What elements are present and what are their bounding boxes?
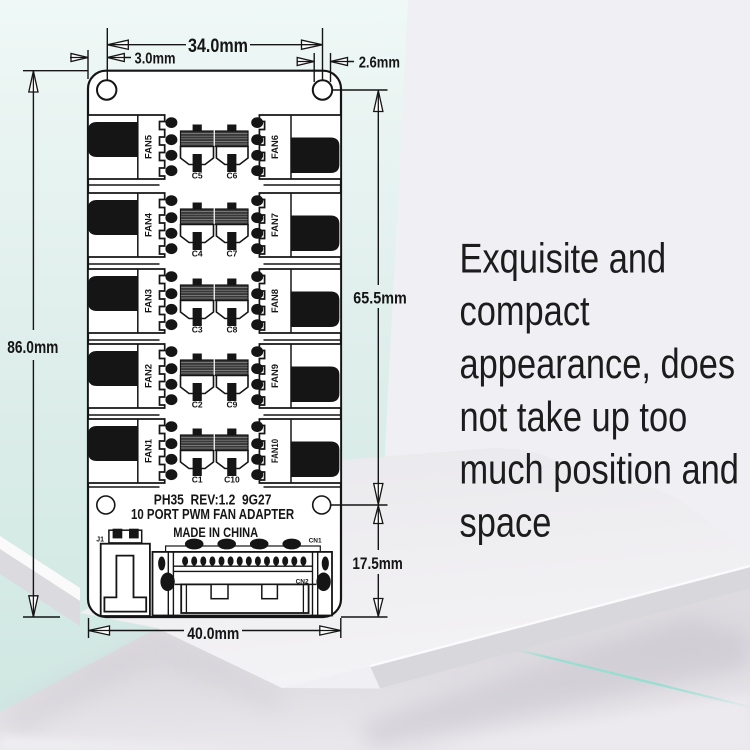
svg-text:FAN1: FAN1 — [144, 439, 154, 463]
svg-text:C1: C1 — [192, 475, 203, 485]
svg-text:FAN3: FAN3 — [144, 289, 154, 313]
svg-text:not take up too: not take up too — [460, 394, 688, 441]
svg-text:C7: C7 — [226, 249, 237, 259]
svg-text:40.0mm: 40.0mm — [187, 625, 239, 643]
svg-text:3.0mm: 3.0mm — [135, 51, 176, 68]
svg-text:2.6mm: 2.6mm — [359, 54, 400, 71]
svg-text:FAN4: FAN4 — [144, 213, 154, 237]
svg-text:FAN8: FAN8 — [270, 289, 280, 313]
svg-text:FAN9: FAN9 — [270, 364, 280, 388]
svg-text:65.5mm: 65.5mm — [353, 288, 406, 307]
svg-text:C8: C8 — [226, 325, 237, 335]
svg-text:FAN5: FAN5 — [144, 135, 154, 159]
svg-text:C5: C5 — [192, 171, 203, 181]
svg-text:MADE IN CHINA: MADE IN CHINA — [173, 524, 258, 540]
svg-text:CN1: CN1 — [309, 538, 322, 545]
svg-text:17.5mm: 17.5mm — [352, 554, 402, 573]
svg-text:J1: J1 — [96, 537, 104, 544]
svg-text:C10: C10 — [224, 475, 240, 485]
svg-text:appearance, does: appearance, does — [460, 341, 736, 388]
svg-text:C6: C6 — [226, 171, 237, 181]
svg-text:C2: C2 — [192, 400, 203, 410]
svg-text:space: space — [460, 499, 552, 546]
svg-text:34.0mm: 34.0mm — [188, 36, 248, 57]
svg-text:10 PORT PWM FAN ADAPTER: 10 PORT PWM FAN ADAPTER — [131, 507, 295, 523]
svg-text:86.0mm: 86.0mm — [7, 337, 58, 357]
svg-text:compact: compact — [460, 288, 590, 335]
svg-text:much position and: much position and — [460, 446, 739, 493]
svg-text:FAN2: FAN2 — [144, 364, 154, 388]
svg-text:Exquisite and: Exquisite and — [460, 235, 667, 282]
svg-text:C3: C3 — [192, 325, 203, 335]
svg-text:C9: C9 — [226, 400, 237, 410]
svg-text:FAN6: FAN6 — [270, 135, 280, 159]
svg-text:C4: C4 — [192, 249, 203, 259]
svg-text:FAN7: FAN7 — [270, 213, 280, 237]
svg-text:FAN10: FAN10 — [270, 439, 280, 463]
